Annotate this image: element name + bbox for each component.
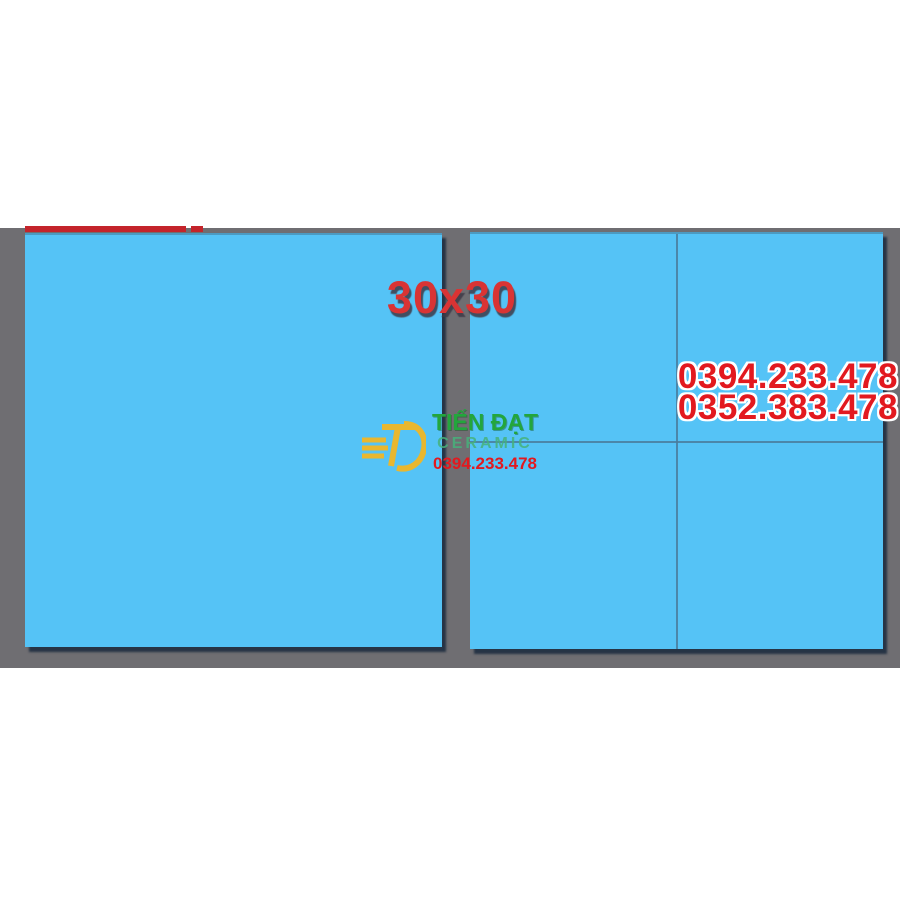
tile-size-label: 30x30 <box>352 275 552 320</box>
red-banner-fragment <box>191 226 203 232</box>
brand-logo-text: TIẾN ĐẠT CERAMIC 0394.233.478 <box>426 410 544 474</box>
brand-name: TIẾN ĐẠT <box>426 410 544 434</box>
brand-phone: 0394.233.478 <box>426 453 544 474</box>
phone-number-2: 0352.383.478 <box>678 392 898 423</box>
product-image: 30x30 TIẾN ĐẠT CERAMIC 0394.233.478 0394… <box>0 0 900 900</box>
td-monogram-icon <box>360 418 426 474</box>
brand-logo: TIẾN ĐẠT CERAMIC 0394.233.478 <box>360 410 546 482</box>
contact-phones: 0394.233.478 0352.383.478 <box>678 361 898 423</box>
brand-subtitle: CERAMIC <box>426 434 544 453</box>
red-banner-strip <box>25 226 186 232</box>
